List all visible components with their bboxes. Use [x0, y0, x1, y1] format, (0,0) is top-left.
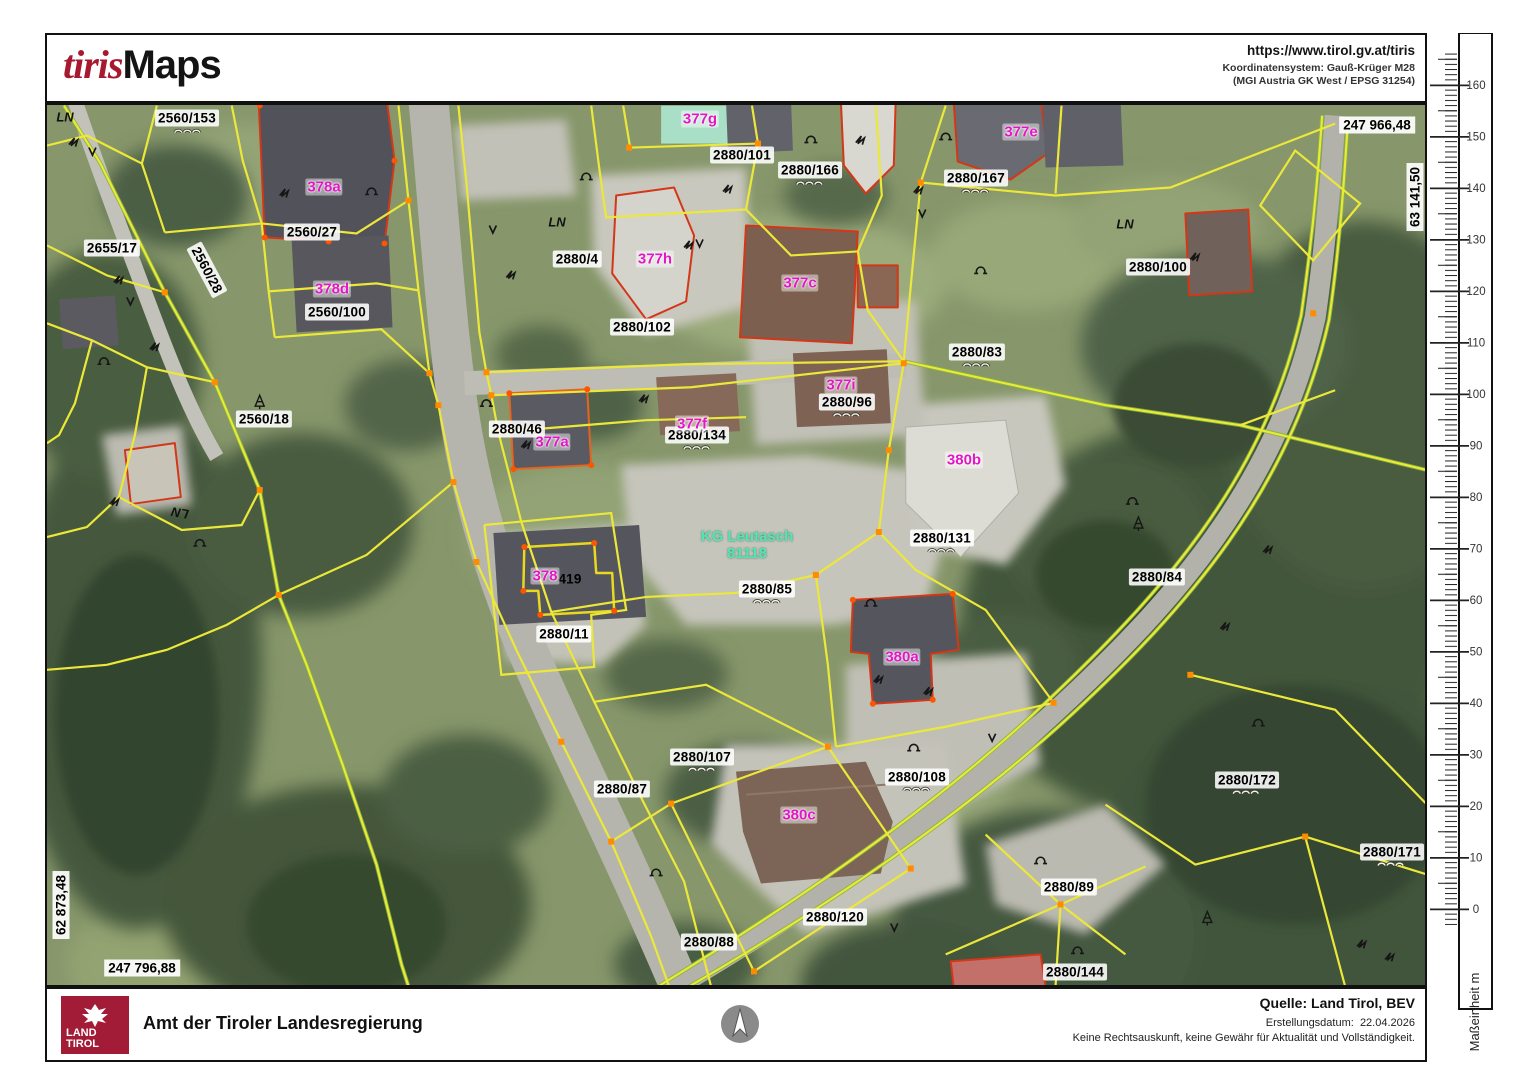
map-coordinate-bottom-left: 247 796,88: [104, 960, 180, 977]
landuse-ln-label: LN: [170, 504, 190, 522]
building-label: 380b: [945, 452, 983, 469]
land-tirol-logo: LAND TIROL: [61, 996, 129, 1054]
building-shed: [125, 443, 181, 504]
map-coordinate-left-edge: 62 873,48: [53, 871, 70, 939]
parcel-label: 2560/27: [284, 224, 340, 241]
parcel-label: 2560/153: [155, 110, 219, 127]
parcel-label: 2560/100: [305, 304, 369, 321]
ruler-tick-label: 110: [1467, 338, 1485, 350]
ruler-tick-label: 120: [1466, 286, 1485, 298]
creation-date-value: 22.04.2026: [1360, 1017, 1415, 1029]
ruler-tick-label: 150: [1466, 132, 1485, 144]
parcel-label: 2880/171: [1360, 844, 1424, 861]
building-377e-annex: [1043, 105, 1124, 168]
coordinate-system-line1: Koordinatensystem: Gauß-Krüger M28: [1222, 62, 1415, 75]
parcel-label: 2880/100: [1126, 259, 1190, 276]
kg-name: KG Leutasch: [701, 528, 794, 545]
tiris-url: https://www.tirol.gv.at/tiris: [1222, 43, 1415, 58]
building-label: 380a: [883, 649, 920, 666]
parcel-label: 2560/18: [236, 411, 292, 428]
coordinate-system-line2: (MGI Austria GK West / EPSG 31254): [1222, 75, 1415, 88]
landuse-ln-label: LN: [1116, 217, 1133, 232]
parcel-label: 2880/88: [681, 934, 737, 951]
ruler-tick-label: 60: [1470, 595, 1483, 607]
parcel-label: 2880/120: [803, 909, 867, 926]
parcel-label: 2880/87: [594, 781, 650, 798]
parcel-label: 2880/107: [670, 749, 734, 766]
parcel-label: 2880/83: [949, 344, 1005, 361]
building-2880-100: [1185, 209, 1252, 295]
footer-meta: Quelle: Land Tirol, BEV Erstellungsdatum…: [1073, 995, 1415, 1046]
ruler-tick-label: 30: [1470, 750, 1483, 762]
source-note: Quelle: Land Tirol, BEV: [1073, 995, 1415, 1011]
tiris-maps-logo: tirisMaps: [63, 41, 221, 88]
logo-maps: Maps: [122, 43, 220, 87]
building-label: 377f: [675, 416, 709, 433]
ruler-tick-label: 20: [1470, 801, 1483, 813]
building-label: 377e: [1002, 124, 1039, 141]
parcel-label: 2880/89: [1041, 879, 1097, 896]
parcel-label: 2880/131: [910, 530, 974, 547]
ruler-tick-label: 70: [1470, 544, 1483, 556]
ruler-tick-label: 10: [1470, 853, 1483, 865]
building-label: 380c: [780, 807, 817, 824]
logo-text-tirol: TIROL: [66, 1039, 99, 1050]
building-label: 377a: [533, 434, 570, 451]
ruler-unit-label: Maßeinheit m: [1467, 942, 1483, 1082]
building-label: 377c: [781, 275, 818, 292]
building-label: 378: [530, 568, 559, 585]
building-label: 377g: [681, 111, 719, 128]
parcel-label: 2880/11: [536, 626, 591, 643]
map-canvas[interactable]: 2560/153 2655/17 2560/28 2560/27 2560/10…: [45, 103, 1427, 987]
kg-municipality-label: KG Leutasch 81118: [701, 528, 794, 562]
header-bar: tirisMaps https://www.tirol.gv.at/tiris …: [45, 33, 1427, 103]
parcel-label: 2880/144: [1043, 964, 1107, 981]
ruler-tick-label: 160: [1466, 80, 1485, 92]
parcel-label: 2880/84: [1129, 569, 1185, 586]
north-arrow-icon: [719, 1003, 761, 1045]
ruler-tick-label: 40: [1470, 698, 1483, 710]
ruler-tick-label: 140: [1466, 183, 1485, 195]
logo-tiris: tiris: [63, 42, 122, 87]
building-label: 377h: [636, 251, 674, 268]
building-label: 378d: [313, 281, 351, 298]
ruler-tick-label: 0: [1473, 904, 1479, 916]
map-coordinate-right-edge: 63 141,50: [1407, 163, 1424, 231]
parcel-label: 2880/166: [778, 162, 842, 179]
parcel-label: 2880/108: [885, 769, 949, 786]
creation-date-label: Erstellungsdatum:: [1266, 1017, 1354, 1029]
parcel-label: 2880/172: [1215, 772, 1279, 789]
ruler-tick-label: 80: [1470, 492, 1483, 504]
parcel-label: 2880/167: [944, 170, 1008, 187]
footer-bar: LAND TIROL Amt der Tiroler Landesregieru…: [45, 987, 1427, 1062]
ruler-tick-label: 100: [1466, 389, 1485, 401]
ruler-major-ticks: [1430, 73, 1469, 919]
ruler-tick-label: 90: [1470, 441, 1483, 453]
building-label: 378a: [305, 179, 342, 196]
landuse-ln-label: LN: [56, 110, 73, 125]
building-left: [59, 295, 119, 349]
header-meta: https://www.tirol.gv.at/tiris Koordinate…: [1222, 43, 1415, 88]
ruler-tick-label: 50: [1470, 647, 1483, 659]
parcel-label: 2880/102: [610, 319, 674, 336]
parcel-label: 2880/4: [553, 251, 602, 268]
disclaimer-text: Keine Rechtsauskunft, keine Gewähr für A…: [1073, 1031, 1415, 1046]
landuse-ln-label: LN: [548, 215, 565, 230]
ruler-tick-label: 130: [1466, 235, 1485, 247]
house-number-label: 419: [555, 571, 584, 588]
parcel-label: 2880/85: [739, 581, 795, 598]
map-coordinate-top-right: 247 966,48: [1339, 117, 1415, 134]
building-label: 377i: [824, 377, 857, 394]
parcel-label: 2655/17: [84, 240, 140, 257]
parcel-label: 2880/101: [710, 147, 774, 164]
kg-number: 81118: [701, 545, 794, 562]
agency-title: Amt der Tiroler Landesregierung: [143, 1013, 423, 1034]
parcel-label: 2880/96: [819, 394, 875, 411]
scale-ruler: 160 150 140 130 120 110 100 90 80 70 60 …: [1429, 33, 1496, 1011]
